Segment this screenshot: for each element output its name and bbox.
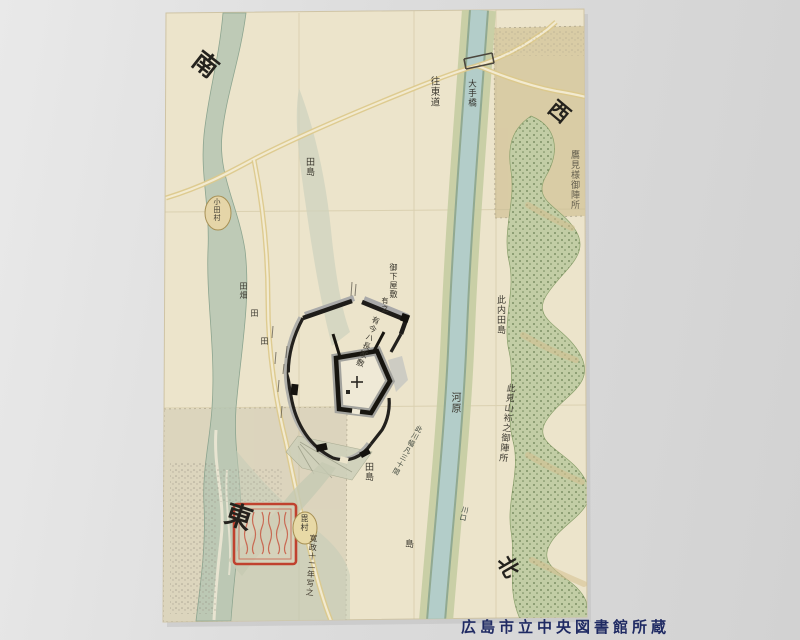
label-kono-uchi-tajima: 此内田島 [495,295,504,335]
label-kawara: 河原 [449,392,459,414]
label-shimo-yashiki: 御下屋敷 [389,263,397,299]
label-village-oval-top: 小田村 [213,198,220,222]
label-shimo-yashiki-note: 有之 [381,297,388,313]
label-tajima-bottom: 田島 [363,462,372,482]
label-field-patch: 田畑 [239,282,247,300]
label-field-1: 田 [250,309,258,318]
label-field-2: 田 [260,337,268,346]
map-artwork [0,0,800,640]
credit-text: 広島市立中央図書館所蔵 [461,616,670,637]
label-bridge: 大手橋 [467,79,476,108]
photo-background: 南 西 東 北 往東道 大手橋 田島 田畑 田 田 御下屋敷 有之 有今ハ長家敷… [0,0,800,640]
label-road-name: 往東道 [429,76,439,108]
label-takami-camp: 鷹見様御陣所 [569,150,578,210]
label-village-oval-bottom: 毘村 [300,514,308,532]
label-shima: 島 [403,539,412,549]
label-field-island-top: 田島 [304,157,313,177]
